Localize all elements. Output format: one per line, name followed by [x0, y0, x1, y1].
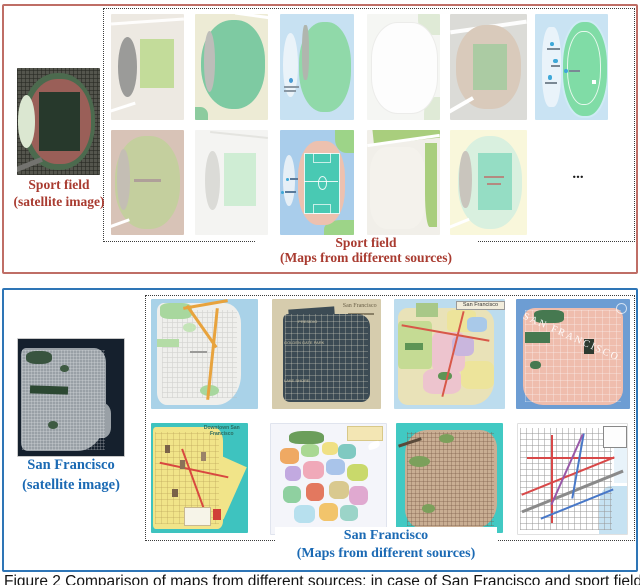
center-circle	[318, 176, 327, 190]
sf-map-tourist-yellow: Downtown San Francisco	[151, 423, 248, 533]
inset-box	[603, 426, 627, 448]
tiny-label-bar	[190, 351, 207, 353]
neighborhood	[283, 486, 301, 504]
sport-map-track-labels	[535, 14, 608, 120]
road	[235, 14, 268, 20]
presidio-park	[289, 431, 324, 444]
tiny-label-bar	[284, 86, 299, 88]
neighborhood	[338, 444, 356, 459]
road	[450, 96, 474, 114]
red-route	[551, 435, 553, 523]
figure-caption: Figure 2 Comparison of maps from differe…	[4, 573, 640, 585]
moon-icon	[616, 303, 627, 314]
sf-maps-caption-line1: San Francisco	[279, 527, 493, 545]
sport-map-blue-marker	[280, 14, 354, 120]
sport-map-white	[367, 14, 440, 120]
sport-map-green-corner	[367, 130, 440, 235]
san-francisco-satellite-image	[17, 338, 125, 457]
park-patch	[422, 504, 435, 513]
gray-crescent	[117, 149, 130, 210]
tiny-label-bar	[487, 183, 501, 185]
neighborhood	[301, 444, 319, 457]
dove-shape	[367, 440, 380, 450]
golden-gate-park	[157, 339, 178, 348]
street-lines	[285, 314, 368, 400]
neighborhood	[294, 505, 315, 523]
sf-satellite-label-line1: San Francisco	[8, 455, 134, 475]
sf-satellite-label: San Francisco (satellite image)	[8, 455, 134, 495]
landmark-icon	[201, 452, 206, 462]
landmark-icon	[165, 445, 171, 453]
map-marker	[548, 75, 552, 79]
dark-field	[39, 92, 80, 152]
lane-line	[567, 31, 601, 105]
district-label: LAKE SHORE	[284, 379, 315, 384]
sport-satellite-label: Sport field (satellite image)	[0, 176, 118, 210]
more-maps-ellipsis: ...	[558, 164, 598, 184]
sport-map-yellow-mint	[450, 130, 527, 235]
road	[450, 218, 470, 230]
sf-maps-caption: San Francisco (Maps from different sourc…	[275, 527, 497, 563]
neighborhood	[347, 464, 368, 482]
tiny-label-bar	[284, 90, 296, 92]
park-patch	[409, 456, 430, 467]
map-marker	[553, 59, 557, 63]
sport-satellite-label-line1: Sport field	[0, 176, 118, 193]
tiny-label-bar	[569, 70, 581, 72]
sf-map-vintage-dark: San FranciscoPRESIDIOGOLDEN GATE PARKLAK…	[272, 299, 381, 409]
gray-crescent	[118, 37, 137, 96]
map-marker	[550, 42, 554, 46]
landmark-icon	[172, 489, 178, 497]
neighborhood	[306, 483, 324, 501]
neighborhood	[340, 505, 358, 520]
white-strip	[542, 27, 561, 108]
district-label: PRESIDIO	[298, 320, 331, 325]
sf-map-pastel-districts: San Francisco	[394, 299, 505, 409]
park	[530, 361, 541, 370]
gray-crescent	[205, 151, 220, 210]
park-patch	[439, 434, 454, 443]
sport-map-white-mint	[195, 130, 268, 235]
landmark-icon	[180, 460, 185, 469]
tiny-label-bar	[484, 176, 504, 178]
road	[111, 102, 136, 114]
green-field-rect	[140, 39, 174, 88]
sport-map-tan-olive	[111, 130, 184, 235]
sf-map-pictorial-isometric	[396, 423, 503, 533]
tiny-label-bar	[285, 191, 295, 193]
penalty-box	[313, 153, 331, 163]
sport-maps-caption: Sport field (Maps from different sources…	[255, 236, 477, 265]
sport-map-soccer-track	[280, 130, 354, 235]
park	[405, 343, 423, 350]
legend-box	[184, 507, 211, 527]
red-cable-car	[213, 509, 221, 520]
neighborhood	[303, 461, 324, 479]
sf-map-illustrated-pink: SAN FRANCISCO	[516, 299, 630, 409]
legend-box	[347, 426, 384, 441]
tiny-label-bar	[290, 178, 299, 180]
blue-district	[467, 317, 487, 332]
figure-2-canvas: Sport field (satellite image) Sport fiel…	[0, 0, 640, 585]
white-blob	[371, 22, 437, 113]
sport-satellite-label-line2: (satellite image)	[0, 193, 118, 210]
green-district	[416, 303, 438, 316]
map-title: Downtown San Francisco	[198, 426, 247, 438]
golden-gate-park	[525, 332, 550, 343]
district-label: GOLDEN GATE PARK	[284, 341, 330, 346]
neighborhood	[349, 486, 367, 506]
golden-gate-park	[30, 385, 68, 395]
map-title-box: San Francisco	[456, 301, 505, 309]
sport-map-green-oval	[195, 14, 268, 120]
green-band-right	[425, 143, 437, 227]
pale-blob	[370, 147, 425, 229]
sport-map-gray-tan	[450, 14, 527, 120]
sport-field-satellite-image	[17, 68, 100, 175]
white-dot	[592, 80, 596, 84]
tiny-label-bar	[547, 48, 560, 50]
tiny-label-bar	[545, 82, 557, 84]
green-field-rect	[473, 44, 507, 91]
road	[210, 131, 268, 139]
building-texture	[407, 432, 495, 527]
tiny-label-bar	[551, 65, 560, 67]
neighborhood	[285, 466, 301, 481]
neighborhood	[329, 481, 350, 499]
tiny-label-bar	[134, 179, 160, 182]
sf-map-transit-grid	[517, 423, 628, 535]
park-patch	[60, 365, 68, 372]
sport-map-beige	[111, 14, 184, 120]
neighborhood	[322, 442, 338, 455]
sf-map-street-osm	[151, 299, 258, 409]
sport-maps-caption-line2: (Maps from different sources)	[259, 251, 473, 266]
neighborhood	[280, 448, 298, 463]
neighborhood	[319, 503, 337, 521]
sf-satellite-label-line2: (satellite image)	[8, 475, 134, 495]
road	[111, 18, 184, 26]
neighborhood	[326, 459, 344, 474]
sf-maps-caption-line2: (Maps from different sources)	[279, 545, 493, 563]
park-blob	[183, 323, 196, 332]
sf-map-neighborhoods-color	[270, 423, 387, 535]
gray-crescent	[459, 151, 471, 208]
sport-maps-caption-line1: Sport field	[259, 236, 473, 251]
presidio-green	[26, 351, 51, 364]
road	[111, 219, 130, 229]
mint-field-rect	[224, 153, 256, 206]
teal-field-rect	[478, 153, 512, 210]
penalty-box	[313, 204, 331, 214]
yellow-district	[461, 361, 494, 390]
green-corner	[195, 107, 208, 120]
gray-strip	[302, 25, 309, 80]
